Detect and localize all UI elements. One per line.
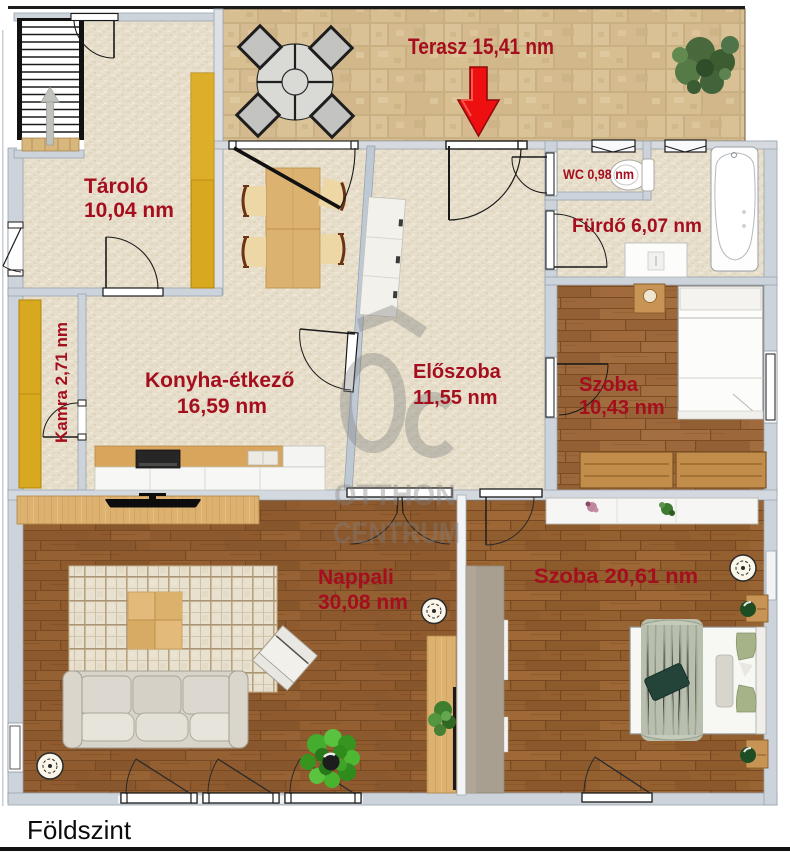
svg-text:Szoba 20,61 nm: Szoba 20,61 nm: [534, 565, 698, 588]
svg-text:30,08 nm: 30,08 nm: [318, 591, 408, 614]
svg-text:WC 0,98 nm: WC 0,98 nm: [563, 167, 634, 182]
svg-text:10,04 nm: 10,04 nm: [84, 199, 174, 222]
svg-text:Terasz 15,41 nm: Terasz 15,41 nm: [408, 34, 554, 59]
svg-text:Kamra 2,71 nm: Kamra 2,71 nm: [52, 322, 71, 443]
svg-text:Tároló: Tároló: [84, 175, 148, 198]
svg-text:Szoba: Szoba: [579, 374, 639, 396]
svg-text:Nappali: Nappali: [318, 566, 394, 589]
svg-text:10,43 nm: 10,43 nm: [579, 397, 665, 419]
svg-text:Fürdő 6,07 nm: Fürdő 6,07 nm: [572, 216, 702, 237]
svg-text:Előszoba: Előszoba: [413, 361, 502, 383]
svg-text:Konyha-étkező: Konyha-étkező: [145, 369, 294, 392]
svg-text:OTTHON: OTTHON: [334, 479, 456, 512]
svg-text:11,55 nm: 11,55 nm: [413, 387, 498, 409]
svg-text:CENTRUM: CENTRUM: [333, 517, 460, 550]
svg-text:Földszint: Földszint: [27, 815, 132, 845]
svg-text:16,59 nm: 16,59 nm: [177, 395, 267, 418]
